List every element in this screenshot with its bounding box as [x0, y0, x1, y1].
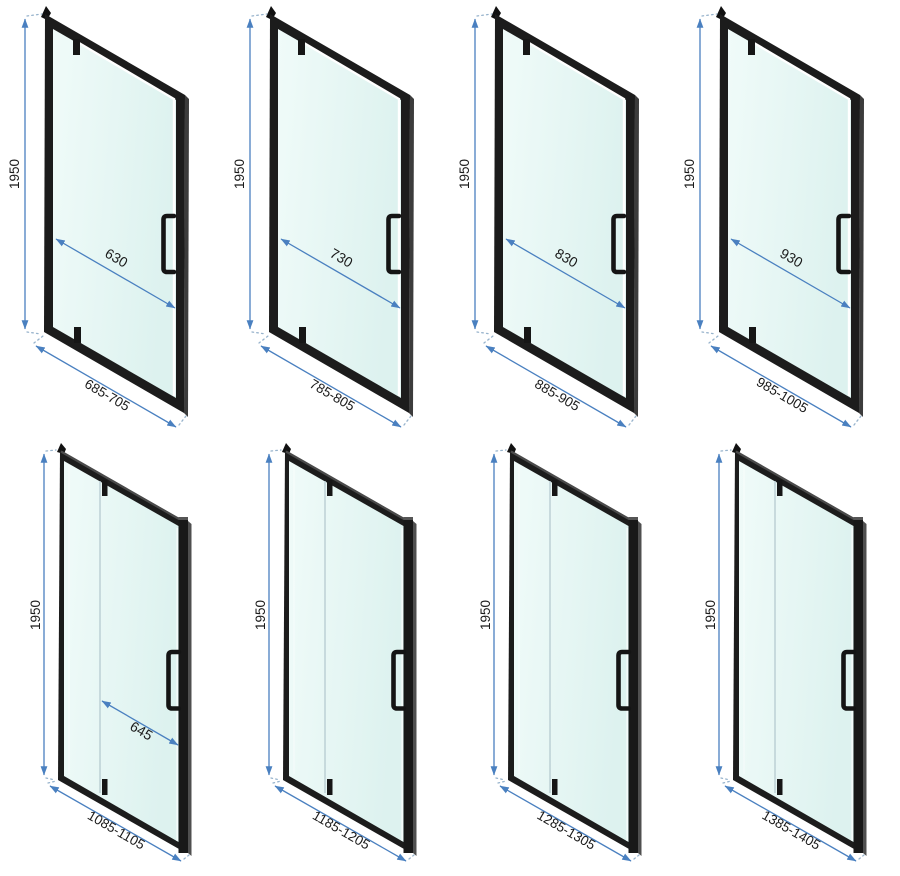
height-dim-label: 1950: [28, 600, 43, 630]
door-cell: 1950 1385-1405: [675, 438, 900, 876]
diagram-sheet: 1950 630 685-705 1950 730 785-805 1950 8…: [0, 0, 900, 876]
height-dim-label: 1950: [703, 600, 718, 630]
height-dim-label: 1950: [253, 600, 268, 630]
door-cell: 1950 630 685-705: [0, 0, 225, 438]
door-drawing-fixed-panel: 1950 1285-1305: [450, 438, 675, 876]
height-dim-label: 1950: [682, 159, 697, 189]
height-dim-label: 1950: [232, 159, 247, 189]
door-drawing-pivot: 1950 830 885-905: [450, 0, 675, 438]
width-range-dim-label: 685-705: [82, 376, 132, 414]
height-dim-label: 1950: [7, 159, 22, 189]
door-cell: 1950 830 885-905: [450, 0, 675, 438]
door-cell: 1950 645 1085-1105: [0, 438, 225, 876]
door-drawing-fixed-panel: 1950 1385-1405: [675, 438, 900, 876]
door-cell: 1950 1285-1305: [450, 438, 675, 876]
door-drawing-pivot: 1950 630 685-705: [0, 0, 225, 438]
width-range-dim-label: 885-905: [532, 376, 582, 414]
door-cell: 1950 730 785-805: [225, 0, 450, 438]
door-cell: 1950 1185-1205: [225, 438, 450, 876]
height-dim-label: 1950: [478, 600, 493, 630]
width-range-dim-label: 985-1005: [754, 374, 811, 416]
door-drawing-fixed-panel: 1950 645 1085-1105: [0, 438, 225, 876]
door-drawing-fixed-panel: 1950 1185-1205: [225, 438, 450, 876]
height-dim-label: 1950: [457, 159, 472, 189]
door-drawing-pivot: 1950 730 785-805: [225, 0, 450, 438]
width-range-dim-label: 785-805: [307, 376, 357, 414]
door-cell: 1950 930 985-1005: [675, 0, 900, 438]
door-drawing-pivot: 1950 930 985-1005: [675, 0, 900, 438]
